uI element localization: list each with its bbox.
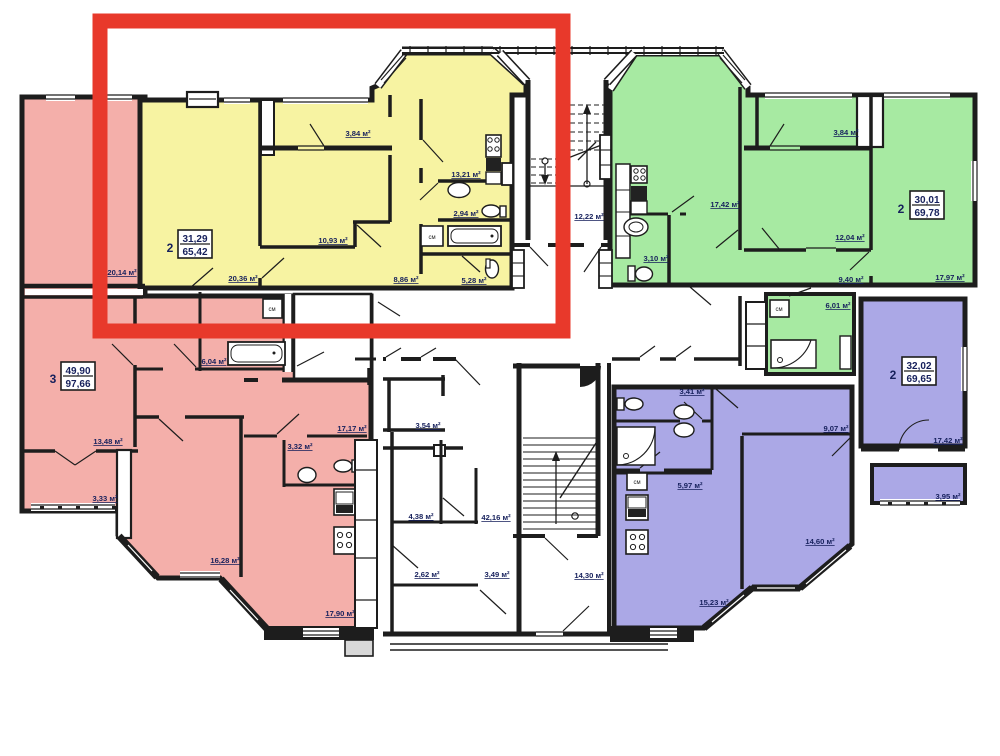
svg-text:3,95 м²: 3,95 м² [935,492,961,501]
svg-text:5,28 м²: 5,28 м² [461,276,487,285]
svg-text:3,33 м²: 3,33 м² [92,494,118,503]
svg-text:31,29: 31,29 [182,234,207,245]
svg-text:20,36 м²: 20,36 м² [228,274,258,283]
svg-text:2,62 м²: 2,62 м² [414,570,440,579]
svg-text:9,07 м²: 9,07 м² [823,424,849,433]
svg-text:3,84 м²: 3,84 м² [833,128,859,137]
svg-text:3,32 м²: 3,32 м² [287,442,313,451]
svg-text:42,16 м²: 42,16 м² [481,513,511,522]
svg-text:3,41 м²: 3,41 м² [679,387,705,396]
svg-text:2: 2 [890,368,897,382]
svg-text:97,66: 97,66 [65,379,90,390]
svg-text:3,10 м²: 3,10 м² [643,254,669,263]
svg-text:2,94 м²: 2,94 м² [453,209,479,218]
svg-text:5,97 м²: 5,97 м² [677,481,703,490]
svg-text:20,14 м²: 20,14 м² [107,268,137,277]
svg-text:3,84 м²: 3,84 м² [345,129,371,138]
svg-text:9,40 м²: 9,40 м² [838,275,864,284]
svg-text:69,65: 69,65 [906,374,931,385]
svg-text:6,01 м²: 6,01 м² [825,301,851,310]
svg-text:4,38 м²: 4,38 м² [408,512,434,521]
svg-text:17,97 м²: 17,97 м² [935,273,965,282]
svg-text:17,42 м²: 17,42 м² [710,200,740,209]
svg-text:6,04 м²: 6,04 м² [201,357,227,366]
svg-text:49,90: 49,90 [65,366,90,377]
svg-text:см: см [633,480,640,486]
svg-text:17,17 м²: 17,17 м² [337,424,367,433]
svg-text:17,90 м²: 17,90 м² [325,609,355,618]
svg-text:8,86 м²: 8,86 м² [393,275,419,284]
svg-text:см: см [775,307,782,313]
svg-text:13,21 м²: 13,21 м² [451,170,481,179]
svg-text:16,28 м²: 16,28 м² [210,556,240,565]
svg-text:15,23 м²: 15,23 м² [699,598,729,607]
svg-text:3,49 м²: 3,49 м² [484,570,510,579]
svg-text:17,42 м²: 17,42 м² [933,436,963,445]
svg-text:2: 2 [898,202,905,216]
svg-text:10,93 м²: 10,93 м² [318,236,348,245]
svg-text:30,01: 30,01 [914,195,939,206]
svg-text:12,04 м²: 12,04 м² [835,233,865,242]
svg-text:3: 3 [50,372,57,386]
svg-text:14,30 м²: 14,30 м² [574,571,604,580]
svg-text:см: см [428,235,435,241]
svg-text:14,60 м²: 14,60 м² [805,537,835,546]
svg-text:12,22 м²: 12,22 м² [574,212,604,221]
svg-text:13,48 м²: 13,48 м² [93,437,123,446]
svg-text:32,02: 32,02 [906,361,931,372]
svg-text:69,78: 69,78 [914,208,939,219]
svg-text:3,54 м²: 3,54 м² [415,421,441,430]
svg-text:см: см [268,307,275,313]
svg-text:65,42: 65,42 [182,247,207,258]
svg-text:2: 2 [167,241,174,255]
